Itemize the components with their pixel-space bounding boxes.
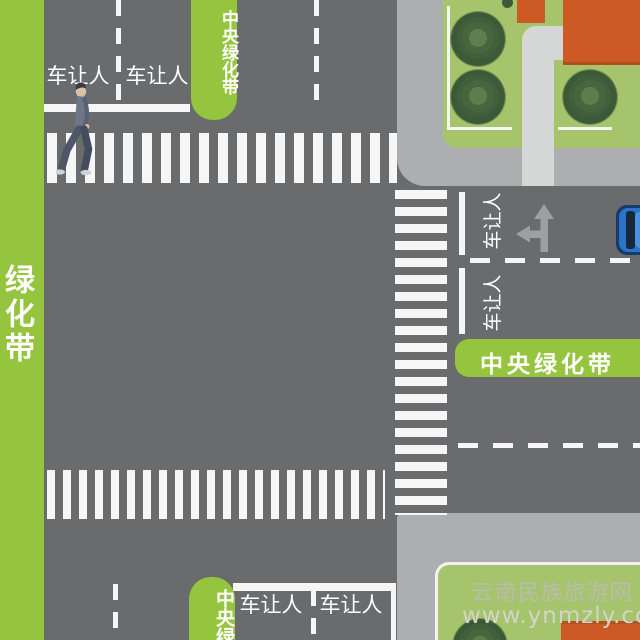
- lane-arrow-icon: [516, 204, 556, 254]
- lane-divider-dashed-southeast: [458, 443, 640, 448]
- central-median-east-label: 中央绿化带: [455, 345, 640, 379]
- building-northeast-large: [563, 0, 640, 65]
- central-median-north-label: 中央绿化带: [191, 10, 237, 95]
- stop-line-east-lower: [459, 268, 465, 334]
- stop-line-south: [233, 583, 393, 591]
- tree-icon: [563, 70, 617, 124]
- lawn-border-line-horizontal-left: [449, 127, 512, 130]
- yield-marking-east-2: 车让人: [482, 272, 504, 334]
- lane-divider-dashed-south-right: [311, 590, 316, 640]
- footpath-arm: [546, 26, 564, 60]
- tree-icon: [451, 70, 505, 124]
- yield-marking-east-1: 车让人: [482, 190, 504, 252]
- green-belt-left-label: 绿化带: [6, 264, 38, 366]
- lane-divider-dashed-north-left: [116, 0, 121, 103]
- lawn-border-line-vertical: [447, 6, 450, 130]
- lane-divider-dashed-east: [470, 258, 640, 263]
- pedestrian-figure: [56, 82, 106, 182]
- lane-divider-dashed-north-right: [314, 0, 319, 112]
- watermark: 云南民族旅游网 www.ynmzly.com: [462, 582, 640, 628]
- lawn-border-line-horizontal-right: [558, 127, 612, 130]
- crosswalk-south: [47, 470, 385, 519]
- watermark-site-url: www.ynmzly.com: [462, 605, 640, 628]
- intersection-illustration: 云南民族旅游网 www.ynmzly.com 绿化带 车让人 车让人 中央绿化带…: [0, 0, 640, 640]
- yield-marking-south-2: 车让人: [317, 592, 385, 618]
- building-northeast-small: [517, 0, 545, 23]
- watermark-site-name: 云南民族旅游网: [462, 582, 640, 605]
- lane-divider-dashed-south-left: [113, 584, 118, 640]
- yield-marking-north-2: 车让人: [124, 63, 190, 89]
- central-median-south-label: 中央绿化带: [189, 589, 235, 640]
- crosswalk-east: [395, 190, 447, 515]
- yield-marking-south-1: 车让人: [237, 592, 305, 618]
- road-edge-line-south: [391, 583, 396, 640]
- tree-icon: [451, 12, 505, 66]
- stop-line-east-upper: [459, 192, 465, 255]
- car-icon: [614, 202, 640, 258]
